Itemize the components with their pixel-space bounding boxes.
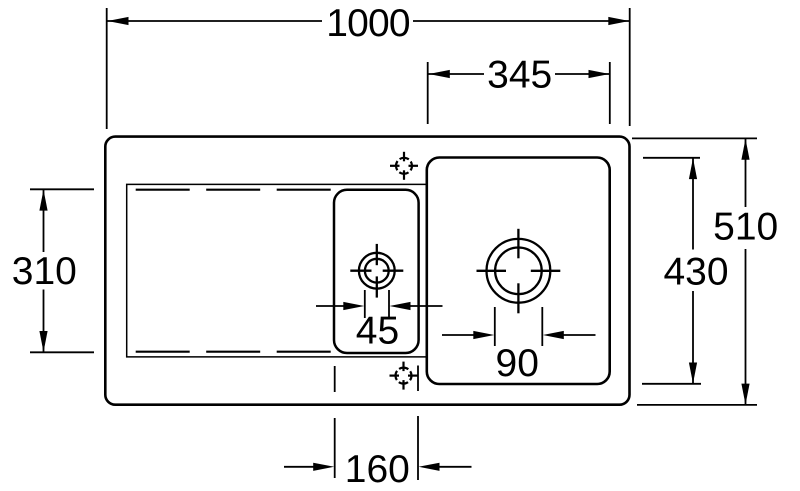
- svg-text:345: 345: [487, 54, 552, 97]
- svg-text:160: 160: [345, 448, 410, 491]
- svg-text:45: 45: [356, 310, 399, 353]
- svg-text:310: 310: [12, 250, 77, 293]
- svg-text:430: 430: [663, 250, 728, 293]
- svg-text:1000: 1000: [326, 2, 410, 45]
- svg-text:510: 510: [713, 206, 778, 249]
- svg-text:90: 90: [496, 342, 539, 385]
